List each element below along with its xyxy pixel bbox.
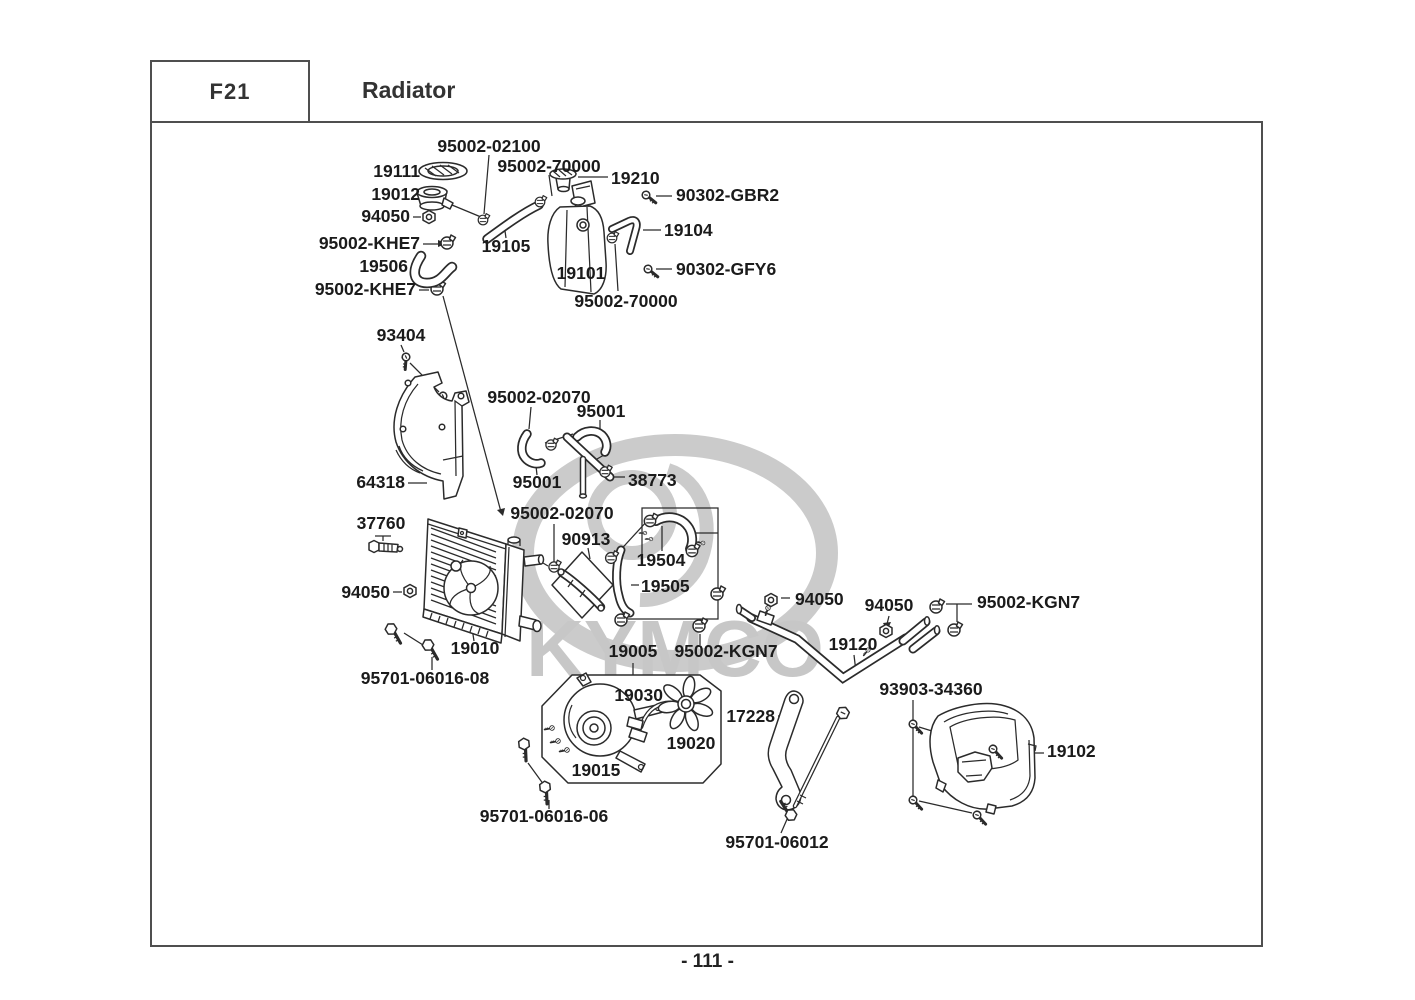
part-label-95001-a: 95001: [577, 401, 626, 421]
part-label-19111: 19111: [373, 161, 420, 181]
part-label-95002-02070-a: 95002-02070: [487, 387, 590, 407]
part-label-19020: 19020: [667, 733, 716, 753]
part-label-95002-70000-a: 95002-70000: [497, 156, 600, 176]
bracket-64318-drawing: [394, 372, 469, 499]
part-label-17228: 17228: [726, 706, 775, 726]
part-label-95002-02070-b: 95002-02070: [510, 503, 613, 523]
part-label-95701-06016-08: 95701-06016-08: [361, 668, 490, 688]
part-label-94050-c: 94050: [795, 589, 844, 609]
catalog-page: { "header": { "section_code": "F21", "ti…: [0, 0, 1415, 1000]
part-label-19120: 19120: [829, 634, 878, 654]
screw-icon: [907, 719, 924, 734]
diagram-canvas: KYMCO: [0, 0, 1415, 1000]
part-label-64318: 64318: [356, 472, 405, 492]
part-label-95001-b: 95001: [513, 472, 562, 492]
part-label-19010: 19010: [451, 638, 500, 658]
hose-clamp-icon: [535, 196, 547, 207]
hose-clamp-icon: [711, 586, 726, 600]
hose-clamp-icon: [607, 232, 619, 243]
part-label-94050-a: 94050: [361, 206, 410, 226]
part-label-38773: 38773: [628, 470, 677, 490]
thermo-sensor-drawing: [369, 541, 403, 553]
part-label-90302-gbr2: 90302-GBR2: [676, 185, 779, 205]
part-label-95701-06012: 95701-06012: [725, 832, 828, 852]
nut-icon: [765, 594, 777, 607]
part-label-95002-kgn7-a: 95002-KGN7: [674, 641, 777, 661]
hose-clamp-icon: [546, 438, 558, 450]
siphon-hose-19105-drawing: [487, 205, 539, 239]
part-label-94050-b: 94050: [341, 582, 390, 602]
part-label-19102: 19102: [1047, 741, 1096, 761]
water-hose-19506-drawing: [415, 256, 452, 283]
part-label-19504: 19504: [637, 550, 686, 570]
nut-icon: [404, 585, 416, 598]
long-bolt-drawing: [795, 718, 838, 806]
part-label-19015: 19015: [572, 760, 621, 780]
part-label-95701-06016-06: 95701-06016-06: [480, 806, 609, 826]
part-label-37760: 37760: [357, 513, 406, 533]
part-label-19030: 19030: [614, 685, 663, 705]
part-label-19210: 19210: [611, 168, 660, 188]
part-label-95002-02100: 95002-02100: [437, 136, 540, 156]
part-label-19105: 19105: [482, 236, 531, 256]
part-label-93903-34360: 93903-34360: [879, 679, 982, 699]
hose-clamp-icon: [441, 235, 456, 249]
part-label-90302-gfy6: 90302-GFY6: [676, 259, 776, 279]
part-label-95002-khe7-a: 95002-KHE7: [319, 233, 420, 253]
part-label-95002-70000-b: 95002-70000: [574, 291, 677, 311]
hose-clamp-icon: [948, 622, 963, 636]
bolt-icon: [420, 638, 444, 660]
radiator-cover-drawing: [930, 704, 1036, 814]
screw-icon: [907, 795, 924, 810]
part-label-90913: 90913: [562, 529, 611, 549]
part-label-94050-d: 94050: [865, 595, 914, 615]
part-label-19005: 19005: [609, 641, 658, 661]
hose-clamp-icon: [478, 214, 490, 225]
part-label-93404: 93404: [377, 325, 426, 345]
part-label-19505: 19505: [641, 576, 690, 596]
bolt-icon: [383, 622, 407, 644]
part-label-19104: 19104: [664, 220, 713, 240]
part-label-95002-khe7-b: 95002-KHE7: [315, 279, 416, 299]
screw-icon: [639, 529, 647, 537]
part-label-19506: 19506: [359, 256, 408, 276]
bolt-icon: [535, 780, 558, 805]
screw-icon: [641, 191, 657, 204]
bolt-icon: [514, 737, 537, 762]
radiator-cap-drawing: [419, 163, 467, 180]
hose-clamp-icon: [930, 599, 945, 613]
nut-icon: [423, 211, 435, 224]
screw-icon: [398, 352, 414, 370]
nut-icon: [880, 625, 892, 638]
filler-neck-drawing: [417, 187, 453, 211]
part-label-19012: 19012: [371, 184, 420, 204]
part-label-95002-kgn7-b: 95002-KGN7: [977, 592, 1080, 612]
part-label-19101: 19101: [557, 263, 606, 283]
screw-icon: [643, 265, 659, 278]
